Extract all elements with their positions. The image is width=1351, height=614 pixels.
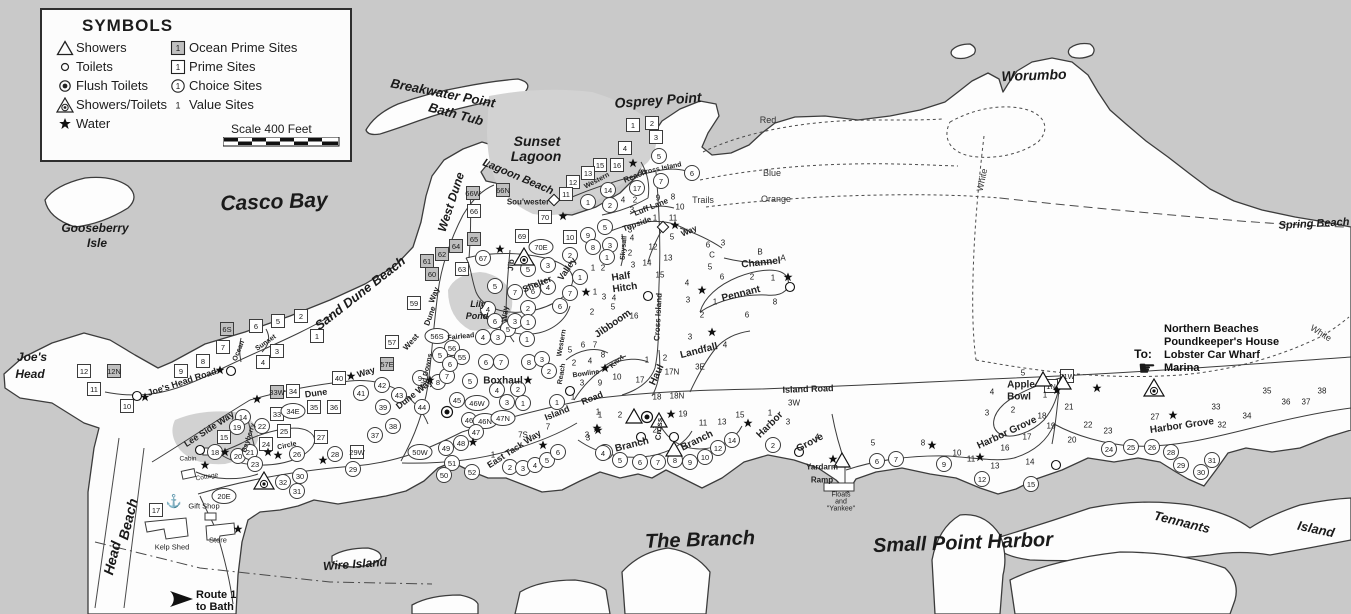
label-gooseberry: Gooseberry (61, 221, 130, 235)
site-choice-label: 70E (534, 243, 547, 252)
site-choice-label: 3 (513, 317, 517, 326)
site-prime-label: 15 (220, 433, 228, 442)
site-prime-label: 5 (276, 317, 280, 326)
label-kelp-shed: Kelp Shed (155, 543, 190, 552)
site-choice-label: 6 (558, 302, 562, 311)
site-choice-label: 1 (578, 273, 582, 282)
site-choice-label: 7 (656, 458, 660, 467)
site-prime-label: 70 (541, 213, 549, 222)
label-apple: Apple (1007, 380, 1035, 391)
site-prime-label: 3 (654, 133, 658, 142)
site-value-12: 12 (649, 243, 658, 252)
site-prime-label: 36 (330, 403, 338, 412)
site-value-2: 2 (633, 196, 638, 205)
site-prime-label: 34 (289, 387, 297, 396)
site-choice-label: 67 (479, 254, 487, 263)
site-ocean-prime-label: 61 (423, 257, 431, 266)
site-choice-label: 6 (638, 458, 642, 467)
site-choice-label: 1 (526, 318, 530, 327)
site-choice-label: 8 (436, 378, 440, 387)
site-prime-label: 57 (388, 338, 396, 347)
toilet-icon (566, 387, 575, 396)
site-value-8: 8 (773, 298, 778, 307)
site-choice-label: 39 (379, 403, 387, 412)
site-value-3: 3 (602, 293, 607, 302)
legend-item-toilets: Toilets (54, 57, 167, 76)
site-value-2: 2 (663, 354, 668, 363)
site-ocean-prime-label: 57E (380, 360, 393, 369)
site-value-13: 13 (718, 418, 727, 427)
site-value-1: 1 (596, 408, 601, 417)
site-value-17: 17 (636, 376, 645, 385)
site-choice-label: 38 (389, 422, 397, 431)
site-choice-label: 30 (296, 472, 304, 481)
label-northern-beaches: Northern Beaches (1164, 323, 1259, 335)
site-choice-label: 24 (1105, 445, 1113, 454)
legend-item-showers: Showers (54, 38, 167, 57)
site-choice-label: 19 (233, 423, 241, 432)
site-value-18N: 18N (670, 392, 685, 401)
label-the-branch: The Branch (645, 527, 756, 553)
legend-title: SYMBOLS (82, 16, 342, 36)
site-choice-label: 32 (279, 478, 287, 487)
site-value-34: 34 (1243, 412, 1252, 421)
showers-toilets-icon (54, 97, 76, 113)
label--yankee-: "Yankee" (827, 506, 856, 513)
label-joe-s: Joe's (17, 350, 48, 364)
gift-shop-building (205, 513, 216, 520)
site-choice-label: 4 (533, 461, 537, 470)
site-choice-label: 31 (293, 487, 301, 496)
site-value-5: 5 (871, 439, 876, 448)
site-value-C: C (709, 251, 715, 260)
site-ocean-prime-label: 62 (438, 250, 446, 259)
site-choice-label: 3 (505, 398, 509, 407)
site-value-5: 5 (611, 303, 616, 312)
legend-item-ocean-prime: 1 Ocean Prime Sites (167, 38, 342, 57)
site-choice-label: 30 (1197, 468, 1205, 477)
site-value-6: 6 (581, 341, 586, 350)
label-worumbo: Worumbo (1001, 66, 1067, 84)
label-lobster-car-wharf: Lobster Car Wharf (1164, 349, 1260, 361)
label-lily: Lily (470, 299, 486, 309)
site-value-3: 3 (688, 333, 693, 342)
toilet-icon (786, 283, 795, 292)
label-store: Store (209, 536, 227, 545)
site-choice-label: 8 (673, 456, 677, 465)
site-choice-label: 25 (1127, 443, 1135, 452)
site-value-5: 5 (670, 233, 675, 242)
site-choice-label: 5 (618, 456, 622, 465)
site-prime-label: 1 (315, 332, 319, 341)
site-value-A: A (780, 254, 786, 263)
label-trails: Trails (692, 195, 714, 205)
site-ocean-prime-label: 66W (465, 189, 481, 198)
site-choice-label: 9 (688, 458, 692, 467)
site-value-2: 2 (1011, 406, 1016, 415)
site-value-6: 6 (745, 311, 750, 320)
site-ocean-prime-label: 33W (269, 388, 285, 397)
site-value-11: 11 (699, 419, 708, 428)
site-choice-label: 2 (771, 441, 775, 450)
site-prime-label: 59 (410, 299, 418, 308)
showers-toilets-dot (522, 258, 525, 261)
label-lagoon: Lagoon (511, 148, 562, 164)
label-red: Red (760, 115, 777, 125)
site-choice-label: 5 (545, 456, 549, 465)
site-choice-label: 6 (448, 360, 452, 369)
site-choice-label: 34E (286, 407, 299, 416)
legend-box: SYMBOLS Showers Toilets Flush Toilets (40, 8, 352, 162)
site-choice-label: 48 (457, 439, 465, 448)
site-value-1: 1 (591, 264, 596, 273)
site-choice-label: 49 (442, 444, 450, 453)
label-isle: Isle (87, 236, 107, 250)
site-choice-label: 20E (217, 492, 230, 501)
site-choice-label: 6 (493, 317, 497, 326)
site-choice-label: 50W (412, 448, 428, 457)
site-value-19: 19 (1047, 422, 1056, 431)
choice-icon: 1 (167, 78, 189, 94)
flush-toilets-icon (54, 78, 76, 94)
site-choice-label: 46 (465, 416, 473, 425)
site-choice-label: 56 (448, 344, 456, 353)
scale-bar: Scale 400 Feet (223, 122, 342, 150)
site-value-10: 10 (613, 373, 622, 382)
site-prime-label: 17 (152, 506, 160, 515)
label-route-1: Route 1 (196, 589, 236, 601)
site-choice-label: 50 (440, 471, 448, 480)
toilet-icon (670, 433, 679, 442)
site-choice-label: 3 (496, 333, 500, 342)
pointing-hand-icon: ☛ (1138, 358, 1156, 380)
legend-item-prime: 1 Prime Sites (167, 57, 342, 76)
toilet-icon (133, 392, 142, 401)
site-value-10: 10 (676, 203, 685, 212)
site-choice-label: 1 (605, 253, 609, 262)
site-choice-label: 3 (608, 241, 612, 250)
site-prime-label: 33 (273, 410, 281, 419)
scale-bar-graphic (223, 137, 341, 147)
site-value-5: 5 (708, 263, 713, 272)
site-value-15: 15 (736, 411, 745, 420)
site-value-21: 21 (1065, 403, 1074, 412)
site-prime-label: 12 (80, 367, 88, 376)
site-choice-label: 18 (211, 448, 219, 457)
site-choice-label: 7 (513, 288, 517, 297)
label-jib: Jib (506, 259, 516, 271)
site-choice-label: 7 (445, 372, 449, 381)
site-prime-label: 66 (470, 207, 478, 216)
site-value-33: 33 (1212, 403, 1221, 412)
label-blue: Blue (763, 168, 781, 178)
site-choice-label: 9 (586, 231, 590, 240)
site-prime-label: 13 (584, 169, 592, 178)
site-value-2: 2 (572, 359, 577, 368)
label-boxhaul: Boxhaul (483, 376, 523, 387)
site-value-8: 8 (601, 351, 606, 360)
site-choice-label: 8 (591, 243, 595, 252)
site-prime-label: 27 (317, 433, 325, 442)
site-choice-label: 3 (540, 355, 544, 364)
site-choice-label: 8 (527, 358, 531, 367)
site-value-1: 1 (771, 274, 776, 283)
site-prime-label: 24 (262, 440, 270, 449)
site-choice-label: 31 (1208, 456, 1216, 465)
site-value-4: 4 (621, 196, 626, 205)
svg-text:1: 1 (176, 82, 181, 91)
site-value-4: 4 (990, 388, 995, 397)
site-ocean-prime-label: 12N (107, 367, 121, 376)
site-choice-label: 17 (633, 184, 641, 193)
site-prime-label: 9 (179, 367, 183, 376)
label-sou-wester: Sou'wester (507, 198, 549, 207)
label-pond: Pond (466, 311, 489, 321)
site-prime-label: 10 (566, 233, 574, 242)
label-floats: Floats (831, 492, 851, 499)
site-choice-label: 5 (603, 223, 607, 232)
site-choice-label: 29 (1177, 461, 1185, 470)
site-value-18: 18 (1038, 412, 1047, 421)
site-prime-label: 4 (623, 144, 627, 153)
site-choice-label: 6 (484, 358, 488, 367)
site-value-6: 6 (706, 241, 711, 250)
site-choice-label: 29 (349, 465, 357, 474)
site-prime-label: 63 (458, 265, 466, 274)
site-ocean-prime-label: 60 (428, 270, 436, 279)
site-value-B: B (757, 248, 762, 257)
site-value-2: 2 (590, 308, 595, 317)
svg-text:1: 1 (176, 44, 181, 53)
site-value-1: 1 (653, 214, 658, 223)
site-choice-label: 12 (978, 475, 986, 484)
site-choice-label: 23 (251, 460, 259, 469)
site-value-2: 2 (618, 411, 623, 420)
site-choice-label: 12 (714, 444, 722, 453)
prime-icon: 1 (167, 59, 189, 75)
site-choice-label: 4 (481, 333, 485, 342)
site-value-13: 13 (991, 462, 1000, 471)
site-prime-label: 10 (123, 402, 131, 411)
site-value-2: 2 (750, 273, 755, 282)
toilet-icon (196, 446, 205, 455)
site-choice-label: 5 (468, 377, 472, 386)
site-value-3W: 3W (788, 399, 800, 408)
site-choice-label: 46N (478, 417, 492, 426)
showers-icon (54, 40, 76, 56)
site-value-4: 4 (685, 279, 690, 288)
site-value-14: 14 (643, 259, 652, 268)
legend-item-choice: 1 Choice Sites (167, 76, 342, 95)
site-choice-label: 37 (371, 431, 379, 440)
anchor-icon: ⚓ (166, 494, 182, 509)
label-sunset: Sunset (514, 133, 562, 149)
svg-text:1: 1 (176, 100, 181, 110)
showers-toilets-dot (262, 482, 265, 485)
label-head: Head (15, 367, 45, 381)
site-value-3: 3 (721, 239, 726, 248)
site-choice-label: 7 (659, 177, 663, 186)
site-prime-label: 2 (650, 119, 654, 128)
site-prime-label: 3 (275, 347, 279, 356)
site-choice-label: 47N (496, 414, 510, 423)
site-value-32: 32 (1218, 421, 1227, 430)
site-value-17N: 17N (665, 368, 680, 377)
toilets-icon (54, 59, 76, 75)
site-choice-label: 15 (1027, 480, 1035, 489)
site-choice-label: 2 (608, 201, 612, 210)
site-prime-label: 15 (596, 161, 604, 170)
campground-map: 66W66N65646261606S12N33W57E1234151613121… (0, 0, 1351, 614)
site-choice-label: 14 (728, 436, 736, 445)
site-choice-label: 1 (555, 398, 559, 407)
site-value-4: 4 (588, 357, 593, 366)
site-choice-label: 26 (293, 450, 301, 459)
site-choice-label: 7 (894, 455, 898, 464)
site-choice-label: 45 (453, 396, 461, 405)
site-value-6: 6 (720, 273, 725, 282)
toilet-icon (644, 292, 653, 301)
site-prime-label: 7 (221, 343, 225, 352)
site-prime-label: 16 (613, 161, 621, 170)
site-value-8: 8 (921, 439, 926, 448)
site-value-37: 37 (1302, 398, 1311, 407)
site-choice-label: 1 (586, 198, 590, 207)
site-value-15: 15 (656, 271, 665, 280)
legend-item-showers-toilets: Showers/Toilets (54, 95, 167, 114)
site-value-3E: 3E (695, 363, 705, 372)
site-value-19: 19 (679, 410, 688, 419)
water-icon (54, 116, 76, 132)
site-choice-label: 9 (942, 460, 946, 469)
legend-item-flush-toilets: Flush Toilets (54, 76, 167, 95)
site-choice-label: 56S (430, 332, 443, 341)
site-choice-label: 3 (521, 464, 525, 473)
label-island-road: Island Road (782, 383, 833, 395)
site-prime-label: 8 (201, 357, 205, 366)
site-choice-label: 6 (556, 448, 560, 457)
site-value-8: 8 (671, 193, 676, 202)
site-value-3: 3 (631, 261, 636, 270)
site-value-10: 10 (953, 449, 962, 458)
legend-item-water: Water (54, 114, 167, 133)
site-choice-label: 47 (472, 428, 480, 437)
site-choice-label: 7 (499, 358, 503, 367)
label-and: and (835, 499, 847, 506)
site-choice-label: 5 (493, 282, 497, 291)
site-choice-label: 1 (525, 335, 529, 344)
label-marina: Marina (1164, 362, 1200, 374)
label-way: Way (500, 305, 510, 322)
site-choice-label: 6 (690, 169, 694, 178)
site-prime-label: 1 (631, 121, 635, 130)
site-prime-label: 2 (299, 312, 303, 321)
label-orange: Orange (761, 194, 791, 204)
site-choice-label: 42 (378, 381, 386, 390)
ocean-prime-icon: 1 (167, 40, 189, 56)
site-choice-label: 5 (438, 351, 442, 360)
label-casco-bay: Casco Bay (220, 189, 329, 216)
site-value-14: 14 (1026, 458, 1035, 467)
site-value-16: 16 (1001, 444, 1010, 453)
site-value-5: 5 (1021, 369, 1026, 378)
site-value-1: 1 (645, 356, 650, 365)
label-poundkeeper-s-house: Poundkeeper's House (1164, 336, 1279, 348)
site-ocean-prime-label: 65 (470, 235, 478, 244)
site-value-11: 11 (669, 214, 678, 223)
site-value-23: 23 (1104, 427, 1113, 436)
value-icon: 1 (167, 97, 189, 113)
site-prime-label: 4 (261, 358, 265, 367)
site-prime-label: 40 (335, 374, 343, 383)
site-value-4: 4 (630, 234, 635, 243)
site-value-7: 7 (546, 423, 551, 432)
showers-toilets-dot (1152, 389, 1155, 392)
site-value-9: 9 (598, 379, 603, 388)
site-choice-label: 28 (331, 450, 339, 459)
flush-toilet-dot (645, 415, 650, 420)
site-value-36: 36 (1282, 398, 1291, 407)
site-ocean-prime-label: 64 (452, 242, 460, 251)
site-value-1: 1 (593, 288, 598, 297)
label-to-bath: to Bath (196, 601, 234, 613)
site-prime-label: 69 (518, 232, 526, 241)
site-choice-label: 6 (875, 457, 879, 466)
site-choice-label: 4 (601, 449, 605, 458)
site-choice-label: 2 (526, 304, 530, 313)
label-ramp: Ramp (811, 476, 833, 485)
site-choice-label: 10 (701, 453, 709, 462)
label-gift-shop: Gift Shop (188, 502, 219, 511)
site-choice-label: 5 (657, 152, 661, 161)
site-value-11: 11 (967, 455, 976, 464)
site-choice-label: 20 (234, 452, 242, 461)
site-choice-label: 2 (508, 463, 512, 472)
site-value-3: 3 (585, 431, 590, 440)
flush-toilet-dot (445, 410, 450, 415)
site-prime-label: 35 (310, 403, 318, 412)
site-value-2: 2 (628, 249, 633, 258)
site-choice-label: 14 (604, 186, 612, 195)
site-prime-label: 12 (569, 178, 577, 187)
toilet-icon (1052, 461, 1061, 470)
site-value-1: 1 (713, 298, 718, 307)
site-choice-label: 22 (258, 422, 266, 431)
site-prime-label: 29W (349, 448, 365, 457)
site-choice-label: 3 (546, 261, 550, 270)
legend-item-value: 1 Value Sites (167, 95, 342, 114)
site-prime-label: 11 (562, 190, 570, 199)
site-prime-label: 25 (280, 427, 288, 436)
site-value-2: 2 (700, 311, 705, 320)
label-cabin: Cabin (180, 456, 197, 463)
site-value-5: 5 (568, 346, 573, 355)
site-choice-label: 44 (418, 403, 426, 412)
site-prime-label: 6 (254, 322, 258, 331)
site-choice-label: 26 (1148, 443, 1156, 452)
site-value-3: 3 (786, 418, 791, 427)
site-choice-label: 41 (357, 389, 365, 398)
site-choice-label: 46W (469, 399, 485, 408)
site-ocean-prime-label: 6S (222, 325, 231, 334)
site-value-35: 35 (1263, 387, 1272, 396)
site-choice-label: 1 (521, 399, 525, 408)
svg-text:1: 1 (176, 63, 181, 72)
site-value-13: 13 (664, 254, 673, 263)
site-value-17: 17 (1023, 433, 1032, 442)
site-ocean-prime-label: 66N (496, 186, 510, 195)
site-choice-label: 5 (526, 265, 530, 274)
